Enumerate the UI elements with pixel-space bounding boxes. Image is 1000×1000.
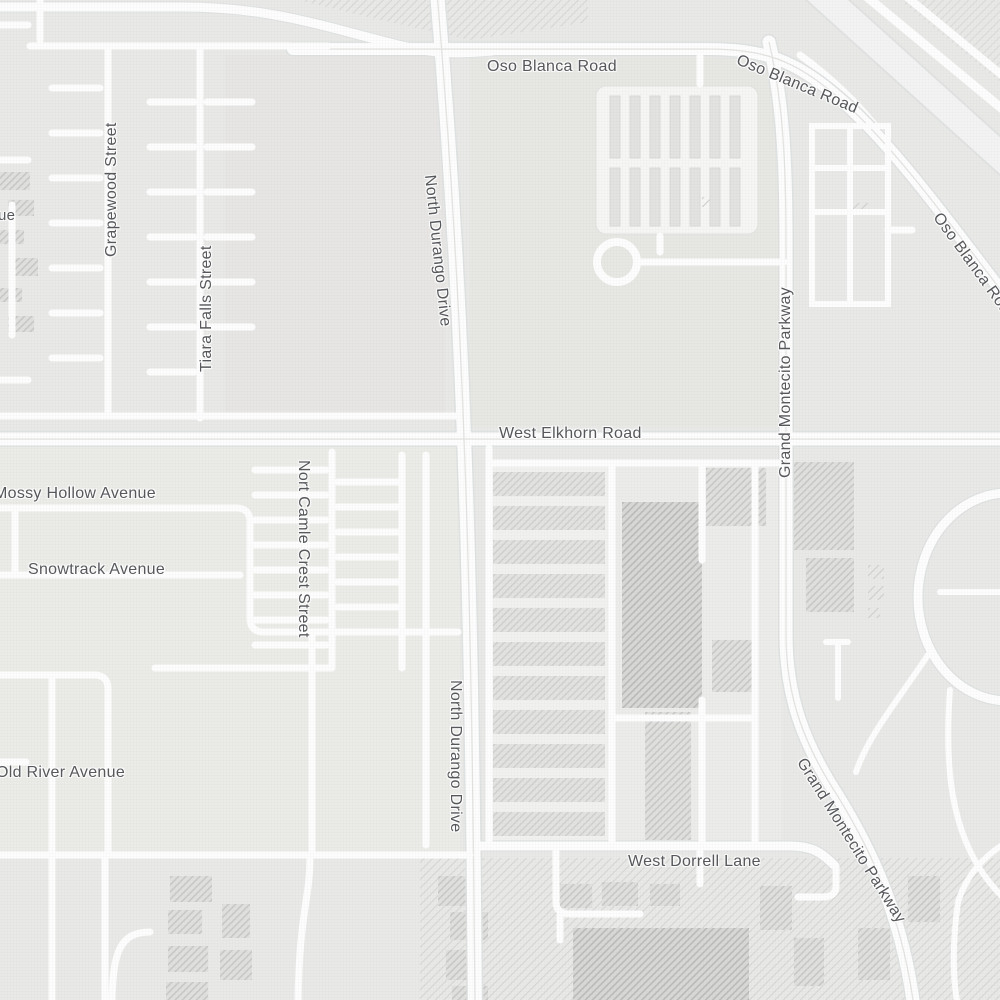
road-label-west-elkhorn-road: West Elkhorn Road: [499, 424, 642, 444]
road-label-partial-avenue: ue: [0, 206, 15, 226]
road-label-old-river-avenue: Old River Avenue: [0, 763, 125, 783]
road-label-snowtrack-avenue: Snowtrack Avenue: [28, 560, 165, 580]
road-label-mossy-hollow-avenue: Mossy Hollow Avenue: [0, 484, 156, 504]
road-label-north-durango-drive-2: North Durango Drive: [445, 680, 465, 832]
road-label-grand-montecito-parkway-1: Grand Montecito Parkway: [776, 287, 796, 478]
road-label-oso-blanca-road-1: Oso Blanca Road: [487, 57, 617, 77]
road-label-grapewood-street: Grapewood Street: [102, 122, 122, 257]
road-label-nort-camle-crest-street: Nort Camle Crest Street: [293, 460, 313, 638]
map-viewport[interactable]: Oso Blanca Road Oso Blanca Road Oso Blan…: [0, 0, 1000, 1000]
road-label-west-dorrell-lane: West Dorrell Lane: [628, 852, 761, 872]
road-label-tiara-falls-street: Tiara Falls Street: [197, 245, 217, 372]
